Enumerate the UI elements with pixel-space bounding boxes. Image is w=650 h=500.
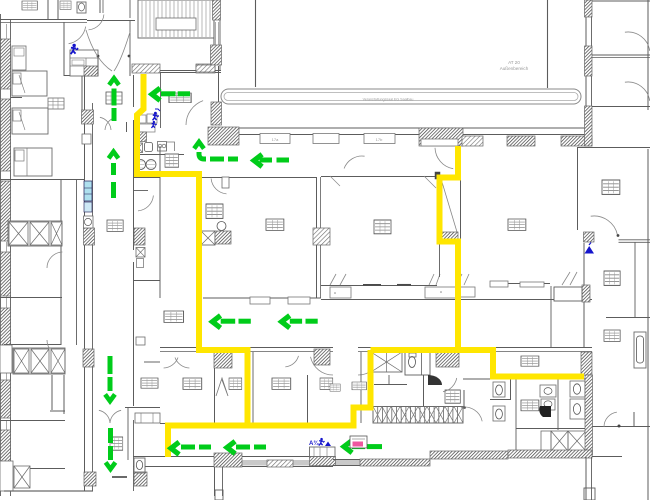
svg-text:17a: 17a: [272, 137, 279, 142]
svg-text:AT 20: AT 20: [508, 60, 520, 65]
svg-text:17b: 17b: [376, 137, 383, 142]
svg-text:Außenbereich: Außenbereich: [500, 66, 529, 71]
svg-text:A¾: A¾: [309, 440, 319, 447]
svg-text:Veranstaltungssaal EG Saalbau: Veranstaltungssaal EG Saalbau: [363, 98, 414, 102]
